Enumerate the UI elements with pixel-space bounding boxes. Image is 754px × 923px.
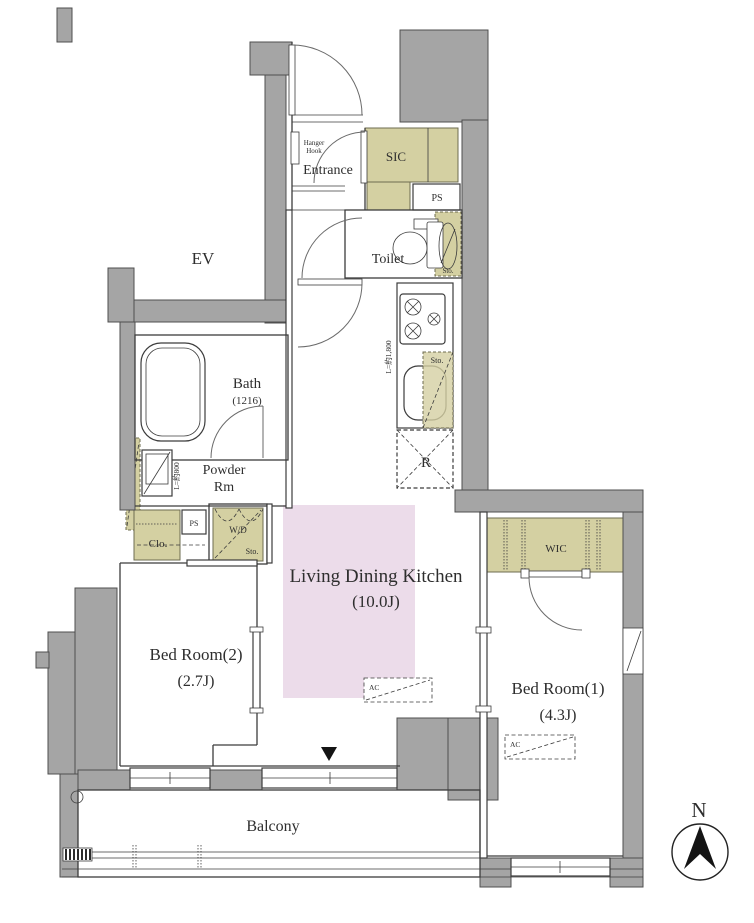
powder-counter-length-label: L=約800 bbox=[171, 462, 181, 490]
balcony-partition-ticks bbox=[133, 845, 201, 868]
toilet-storage-label: Sto. bbox=[442, 267, 453, 275]
wall-br1-window-corner-left bbox=[480, 858, 511, 887]
floor-plan: N EV Hanger Hook Entrance SIC PS Toilet … bbox=[0, 0, 754, 923]
door-jamb bbox=[476, 706, 491, 712]
bedroom1-label: Bed Room(1) bbox=[511, 679, 604, 698]
sic-area bbox=[365, 128, 458, 182]
balcony-hatch-stripes bbox=[66, 849, 90, 860]
bedroom2-label: Bed Room(2) bbox=[149, 645, 242, 664]
powder-label: Rm bbox=[214, 480, 234, 495]
ev-label: EV bbox=[192, 249, 215, 268]
compass: N bbox=[672, 798, 728, 880]
kitchen-storage-label: Sto. bbox=[431, 356, 444, 365]
wall-balcony-left bbox=[60, 774, 78, 877]
compass-north-label: N bbox=[691, 798, 706, 822]
ps-lower-label: PS bbox=[190, 519, 199, 528]
powder-label: Powder bbox=[203, 463, 246, 478]
wall-lower-left-b bbox=[48, 632, 75, 774]
hanger-hook-label: Hanger bbox=[304, 139, 325, 147]
ldk-door-swing bbox=[298, 283, 362, 347]
entrance-label: Entrance bbox=[303, 163, 353, 178]
wall-bedroom1-top bbox=[455, 490, 643, 512]
washer-dryer-label: W/D bbox=[229, 525, 247, 535]
wic-door-leaf bbox=[529, 571, 582, 577]
closet-area bbox=[134, 510, 180, 560]
wall-notch bbox=[36, 652, 49, 668]
refrigerator-label: R bbox=[421, 455, 431, 471]
wic-door-swing bbox=[529, 577, 582, 630]
balcony-railing-lines bbox=[78, 852, 480, 858]
wall-entrance-stub bbox=[250, 42, 292, 75]
wall-ev-right bbox=[265, 75, 286, 323]
wall-wet-area-right bbox=[462, 120, 488, 492]
entry-direction-triangle-icon bbox=[321, 747, 337, 761]
door-jamb bbox=[476, 627, 491, 633]
bathtub bbox=[141, 343, 205, 441]
entrance-door-swing bbox=[292, 45, 362, 115]
wall-right-mass-b bbox=[448, 718, 498, 800]
kitchen-counter-length-label: L=約1,800 bbox=[383, 340, 393, 373]
ps-upper-label: PS bbox=[431, 193, 442, 204]
entrance-door-leaf bbox=[289, 45, 295, 115]
wall-unit-left bbox=[120, 322, 135, 510]
bedroom2-sliding-door-right bbox=[253, 630, 260, 710]
washer-right-wall bbox=[267, 504, 272, 563]
bath-label: Bath bbox=[233, 376, 262, 392]
toilet-tank bbox=[427, 222, 443, 268]
balcony-label: Balcony bbox=[246, 818, 299, 835]
door-jamb bbox=[521, 569, 529, 578]
ldk-ac-label: AC bbox=[369, 683, 379, 692]
labels: EV Hanger Hook Entrance SIC PS Toilet St… bbox=[149, 139, 605, 835]
door-jamb bbox=[582, 569, 590, 578]
wall-window-pier-left bbox=[78, 770, 130, 790]
door-jamb bbox=[250, 627, 263, 632]
wall-outer-right bbox=[623, 512, 643, 887]
bedroom1-ac-label: AC bbox=[510, 740, 520, 749]
floor-plan-drawing: N EV Hanger Hook Entrance SIC PS Toilet … bbox=[0, 0, 754, 923]
wall-top-left-post bbox=[57, 8, 72, 42]
wall-left-stub bbox=[108, 268, 134, 322]
hanger-hook-label: Hook bbox=[306, 147, 322, 155]
bedroom1-left-wall bbox=[480, 512, 487, 858]
entrance-inner-door-leaf bbox=[361, 131, 367, 183]
ldk-label: Living Dining Kitchen bbox=[289, 566, 463, 587]
ldk-door-leaf bbox=[298, 279, 362, 285]
wall-right-mass-a bbox=[397, 718, 448, 790]
sic-label: SIC bbox=[386, 149, 406, 164]
wall-lower-left-a bbox=[75, 588, 117, 774]
wic-label: WIC bbox=[545, 543, 566, 555]
sic-lower-area bbox=[367, 182, 410, 210]
bedroom2-sliding-door-top bbox=[187, 560, 257, 566]
bath-door-swing bbox=[211, 406, 263, 458]
ldk-size-label: (10.0J) bbox=[352, 592, 400, 611]
bedroom2-size-label: (2.7J) bbox=[178, 673, 215, 690]
wall-ev-bottom bbox=[130, 300, 286, 322]
bedroom1-size-label: (4.3J) bbox=[540, 707, 577, 724]
washer-storage-label: Sto. bbox=[246, 547, 259, 556]
wall-window-pier-mid bbox=[210, 770, 262, 790]
hanger-hook-panel bbox=[291, 132, 299, 164]
bath-size-label: (1216) bbox=[232, 395, 262, 407]
closet-label: Clo. bbox=[149, 538, 168, 550]
wall-br1-window-corner-right bbox=[610, 858, 643, 887]
toilet-door-swing bbox=[302, 218, 362, 278]
corridor-wall bbox=[286, 210, 292, 508]
door-jamb bbox=[250, 708, 263, 713]
toilet-label: Toilet bbox=[372, 252, 405, 267]
wall-top-right-block bbox=[400, 30, 488, 122]
